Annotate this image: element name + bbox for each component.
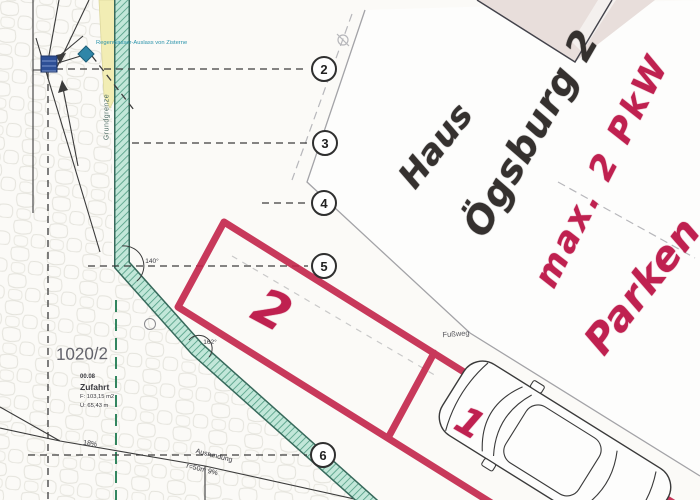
angle-annotation-2: 162° [203,340,216,347]
cistern-shaft-icon [41,56,57,72]
driveway-area: F: 103,15 m2 [80,395,114,401]
driveway-name: Zufahrt [80,383,109,392]
driveway-code: 00.08 [80,374,95,380]
grid-marker-6: 6 [310,442,336,468]
grid-marker-5: 5 [311,253,337,279]
site-plan-drawing [0,0,700,500]
site-plan-page: Regenwasser-Auslass von Zisterne Grundgr… [0,0,700,500]
footpath-label: Fußweg [442,329,470,338]
driveway-perimeter: U: 65,43 m [80,404,108,410]
grid-marker-3: 3 [312,130,338,156]
grid-marker-4: 4 [311,190,337,216]
grid-marker-2: 2 [311,56,337,82]
parcel-number: 1020/2 [56,345,108,363]
boundary-label: Grundgrenze [104,94,111,140]
angle-annotation-1: 140° [145,259,158,266]
cistern-label: Regenwasser-Auslass von Zisterne [96,41,187,47]
